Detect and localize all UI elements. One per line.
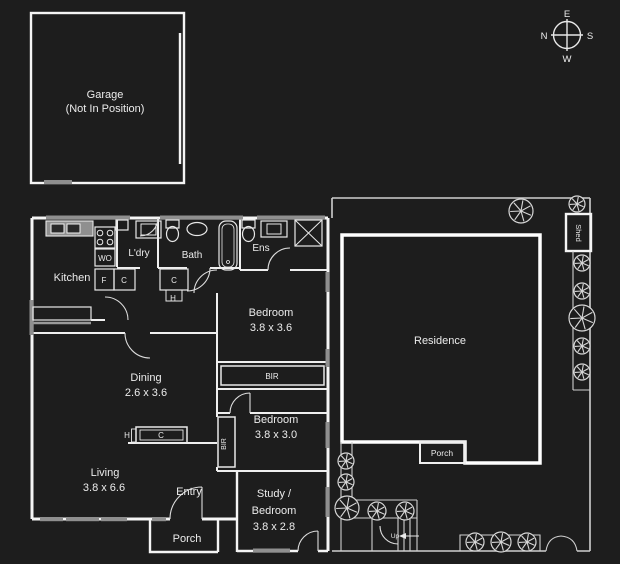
bir-label-vertical: BIR (221, 438, 228, 450)
study-dims: 3.8 x 2.8 (253, 521, 295, 533)
tree-icon (491, 532, 511, 552)
tree-icon (338, 453, 354, 469)
windows (30, 216, 330, 553)
hall-h-label: H (170, 294, 176, 303)
shower-icon (295, 220, 322, 246)
bath-basin-icon (187, 223, 207, 236)
tree-icon (574, 255, 590, 271)
tree-icon (574, 338, 590, 354)
living-dims: 3.8 x 6.6 (83, 482, 125, 494)
floor-plan-page: Garage (Not In Position) E N S W (0, 0, 620, 564)
fridge-label: F (102, 276, 107, 285)
ens-toilet-icon (242, 220, 255, 242)
compass-e: E (564, 9, 570, 20)
wall-oven-label: WO (98, 254, 112, 263)
tree-icon (335, 496, 359, 520)
tree-icon (574, 364, 590, 380)
garage-window (44, 180, 72, 184)
laundry-label: L'dry (128, 248, 149, 259)
tree-icon (396, 502, 414, 520)
hall-cupboard-label: C (171, 276, 177, 285)
kitchen-cupboard-label: C (121, 276, 127, 285)
tree-icon (518, 533, 536, 551)
tree-icon (509, 199, 533, 223)
bedroom1-label: Bedroom (249, 307, 294, 319)
compass-s: S (587, 31, 593, 42)
stove-icon (95, 227, 115, 248)
floor-plan: Garage (Not In Position) E N S W (0, 0, 620, 564)
site-boundary (332, 198, 590, 551)
tree-icon (368, 502, 386, 520)
site-porch-label: Porch (431, 448, 453, 458)
bedroom2-label: Bedroom (254, 414, 299, 426)
compass-w: W (563, 54, 572, 65)
kitchen-bench-sink (33, 221, 93, 320)
garage-label: Garage (87, 89, 124, 101)
dining-label: Dining (130, 372, 161, 384)
stairs-up-arrow (399, 533, 419, 539)
entry-label: Entry (176, 486, 202, 498)
bathtub-icon (219, 221, 237, 270)
dining-cupboard-label: C (158, 431, 164, 440)
residence-outline (342, 235, 540, 463)
kitchen-label: Kitchen (54, 272, 91, 284)
bath-toilet-icon (166, 220, 179, 242)
compass-rose (551, 19, 583, 51)
compass-n: N (541, 31, 548, 42)
dining-dims: 2.6 x 3.6 (125, 387, 167, 399)
shed-label: Shed (574, 224, 583, 242)
tree-icon (569, 196, 585, 212)
living-label: Living (91, 467, 120, 479)
trees (335, 196, 595, 552)
tree-icon (466, 533, 484, 551)
ens-label: Ens (252, 243, 269, 254)
study-label-line1: Study / (257, 488, 292, 500)
tree-icon (338, 474, 354, 490)
driveway-gate (546, 536, 577, 551)
garage-note: (Not In Position) (66, 103, 145, 115)
study-label-line2: Bedroom (252, 505, 297, 517)
house-porch-label: Porch (173, 533, 202, 545)
residence-label: Residence (414, 335, 466, 347)
bedroom1-dims: 3.8 x 3.6 (250, 322, 292, 334)
bath-label: Bath (182, 250, 203, 261)
tree-icon (574, 283, 590, 299)
tree-icon (569, 305, 595, 331)
stairs-up-label: Up (391, 533, 400, 540)
dining-h-label: H (124, 431, 130, 440)
bedroom2-dims: 3.8 x 3.0 (255, 429, 297, 441)
ens-vanity-icon (261, 221, 287, 237)
bir-label-horizontal: BIR (265, 372, 279, 381)
